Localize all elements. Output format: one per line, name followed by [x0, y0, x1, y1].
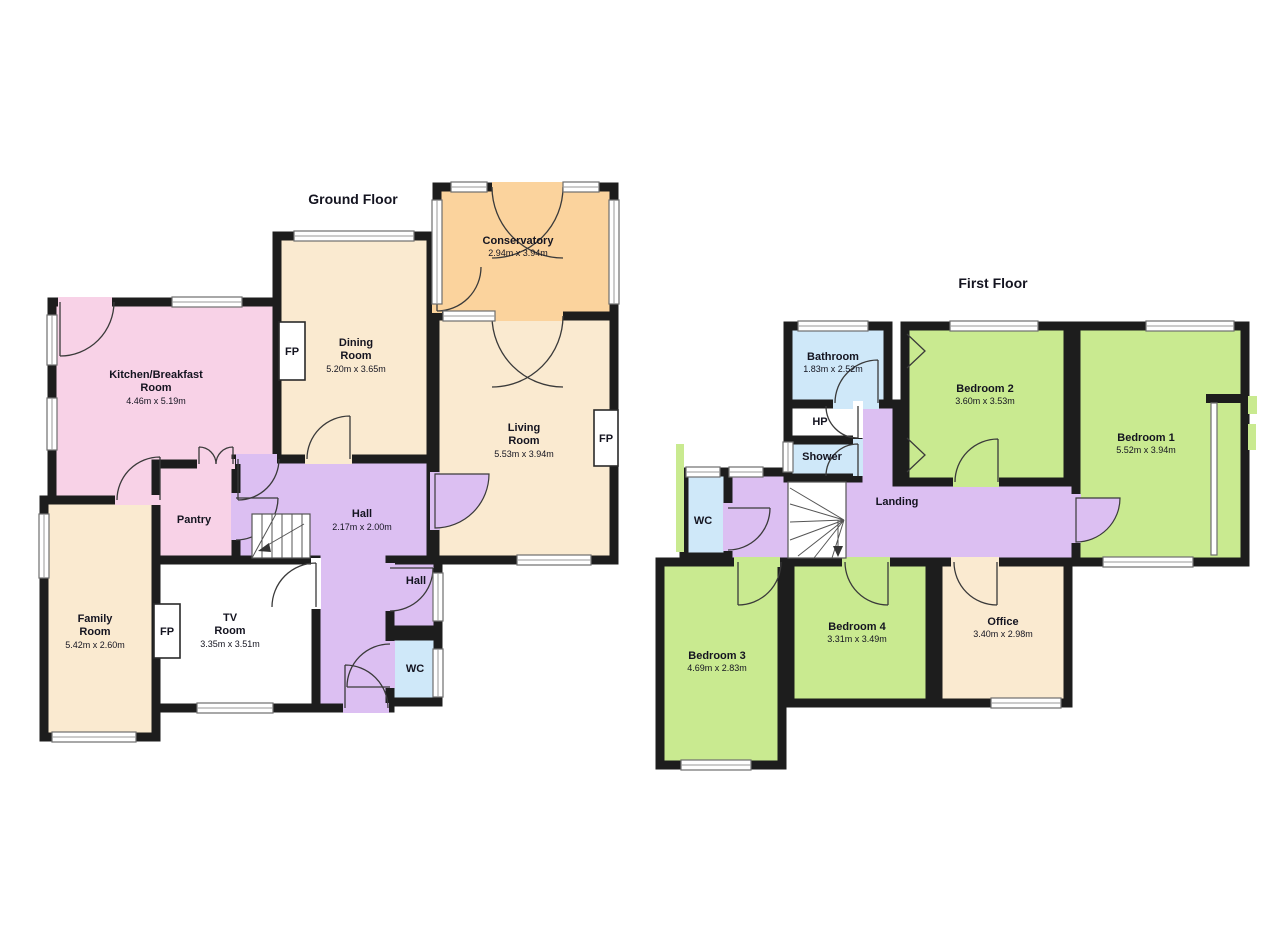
room-dims: 3.60m x 3.53m: [955, 396, 1015, 406]
room-pantry: [156, 464, 236, 560]
room-dims: 5.52m x 3.94m: [1116, 445, 1176, 455]
room-dims: 3.35m x 3.51m: [200, 639, 260, 649]
room-label: Shower: [802, 451, 842, 463]
room-dims: 2.94m x 3.94m: [488, 248, 548, 258]
floorplan-drawing: Ground Floor Kitchen/Breakfast Room 4.46…: [0, 0, 1280, 930]
room-label: Conservatory: [483, 235, 555, 247]
staircase-first: [788, 482, 846, 558]
door-opening: [236, 454, 277, 464]
fireplace-label: FP: [160, 626, 174, 638]
door-opening: [951, 557, 999, 567]
room-label: Kitchen/Breakfast: [109, 369, 203, 381]
room-label: HP: [812, 416, 827, 428]
door-opening: [953, 477, 999, 487]
room-dims: 3.40m x 2.98m: [973, 629, 1033, 639]
room-label: Room: [508, 435, 539, 447]
fireplace-label: FP: [599, 433, 613, 445]
room-label: Bedroom 2: [956, 383, 1013, 395]
room-label: Room: [214, 625, 245, 637]
room-label: Pantry: [177, 514, 212, 526]
door-opening: [734, 557, 780, 567]
room-label: Office: [987, 616, 1018, 628]
wall-tab: [1248, 396, 1257, 414]
staircase-ground: [252, 514, 310, 558]
wall-tab: [1248, 424, 1256, 450]
first-floor-plan: First Floor Bathroom 1.83m x 2.52m HP Sh…: [660, 275, 1257, 770]
door-opening: [385, 641, 395, 688]
room-label: Living: [508, 422, 540, 434]
door-opening: [343, 703, 389, 713]
fireplace-label: FP: [285, 346, 299, 358]
room-dims: 4.69m x 2.83m: [687, 663, 747, 673]
door-opening: [58, 297, 112, 307]
room-label: Bedroom 1: [1117, 432, 1174, 444]
room-label: Bathroom: [807, 351, 859, 363]
wardrobe: [1211, 403, 1217, 555]
wall-sliver: [676, 444, 684, 552]
room-dims: 4.46m x 5.19m: [126, 396, 186, 406]
room-label: Dining: [339, 337, 373, 349]
room-dims: 5.20m x 3.65m: [326, 364, 386, 374]
door-opening: [305, 454, 352, 464]
room-dims: 5.42m x 2.60m: [65, 640, 125, 650]
room-dims: 2.17m x 2.00m: [332, 522, 392, 532]
room-label: Hall: [406, 575, 426, 587]
floorplan-page: Ground Floor Kitchen/Breakfast Room 4.46…: [0, 0, 1280, 930]
room-label: TV: [223, 612, 238, 624]
ground-floor-plan: Ground Floor Kitchen/Breakfast Room 4.46…: [39, 182, 619, 742]
door-opening: [385, 563, 395, 611]
room-dims: 1.83m x 2.52m: [803, 364, 863, 374]
room-label: Room: [79, 626, 110, 638]
room-label: Bedroom 3: [688, 650, 745, 662]
first-floor-title: First Floor: [958, 275, 1028, 291]
room-label: Landing: [876, 496, 919, 508]
room-label: WC: [406, 663, 424, 675]
room-dims: 3.31m x 3.49m: [827, 634, 887, 644]
stairs-body: [252, 514, 310, 558]
room-hall-small: [390, 560, 438, 630]
wall-stub: [1206, 394, 1242, 403]
ground-floor-title: Ground Floor: [308, 191, 398, 207]
room-label: Room: [340, 350, 371, 362]
room-label: WC: [694, 515, 712, 527]
door-opening: [492, 182, 563, 192]
door-opening: [842, 557, 890, 567]
room-label: Hall: [352, 508, 372, 520]
room-label: Family: [78, 613, 114, 625]
door-opening: [723, 503, 733, 551]
room-label: Bedroom 4: [828, 621, 886, 633]
room-label: Room: [140, 382, 171, 394]
door-opening: [492, 311, 563, 321]
room-dims: 5.53m x 3.94m: [494, 449, 554, 459]
door-opening: [115, 495, 161, 505]
